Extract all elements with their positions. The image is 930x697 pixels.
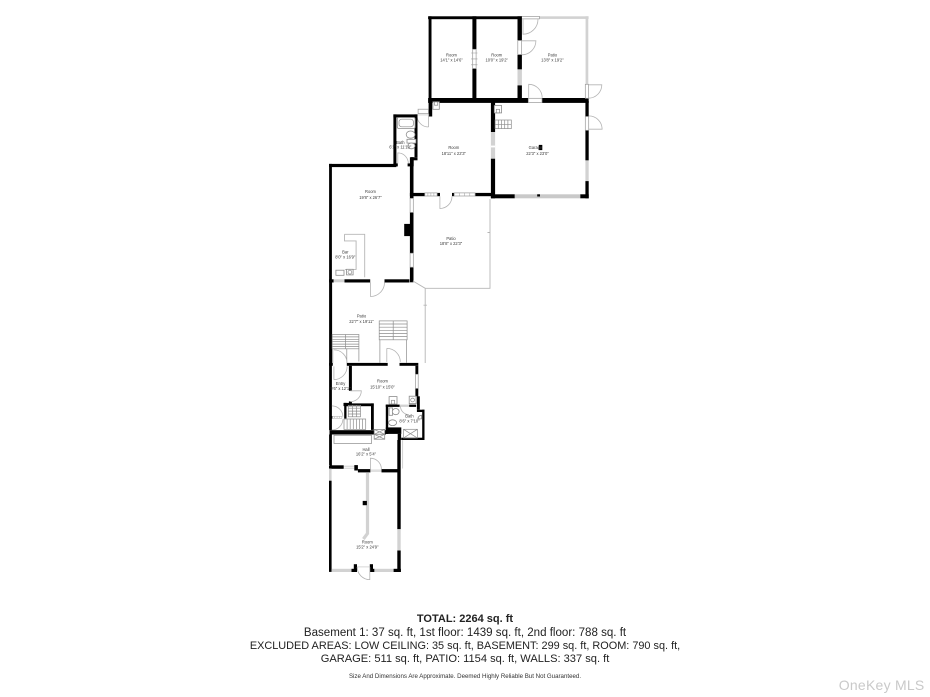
- svg-text:Garage: Garage: [529, 145, 543, 150]
- svg-text:Room: Room: [448, 145, 460, 150]
- svg-text:14'1" x 14'6": 14'1" x 14'6": [440, 58, 463, 63]
- svg-text:18'11" x 22'3": 18'11" x 22'3": [442, 151, 467, 156]
- svg-text:15'2" x 24'9": 15'2" x 24'9": [356, 545, 379, 550]
- svg-text:Room: Room: [446, 52, 458, 57]
- svg-text:22'7" x 19'11": 22'7" x 19'11": [349, 319, 374, 324]
- svg-text:9'6" x 12'1": 9'6" x 12'1": [330, 386, 351, 391]
- svg-text:16'2" x 5'4": 16'2" x 5'4": [356, 452, 377, 457]
- svg-text:15'10" x 15'0": 15'10" x 15'0": [370, 384, 395, 389]
- svg-text:8'0" x 16'9": 8'0" x 16'9": [335, 254, 356, 259]
- svg-text:Room: Room: [365, 189, 377, 194]
- svg-text:Patio: Patio: [357, 313, 367, 318]
- svg-text:13'8" x 19'2": 13'8" x 19'2": [541, 58, 564, 63]
- svg-text:22'3" x 23'0": 22'3" x 23'0": [526, 151, 549, 156]
- svg-text:Room: Room: [377, 378, 389, 383]
- svg-text:18'8" x 22'3": 18'8" x 22'3": [440, 241, 463, 246]
- svg-text:Room: Room: [491, 52, 503, 57]
- svg-text:8'6" x 7'10": 8'6" x 7'10": [399, 418, 420, 423]
- svg-text:Patio: Patio: [548, 52, 558, 57]
- svg-text:19'8" x 26'7": 19'8" x 26'7": [359, 195, 382, 200]
- svg-text:6'1" x 11'10": 6'1" x 11'10": [389, 145, 412, 150]
- svg-text:10'0" x 19'2": 10'0" x 19'2": [485, 58, 508, 63]
